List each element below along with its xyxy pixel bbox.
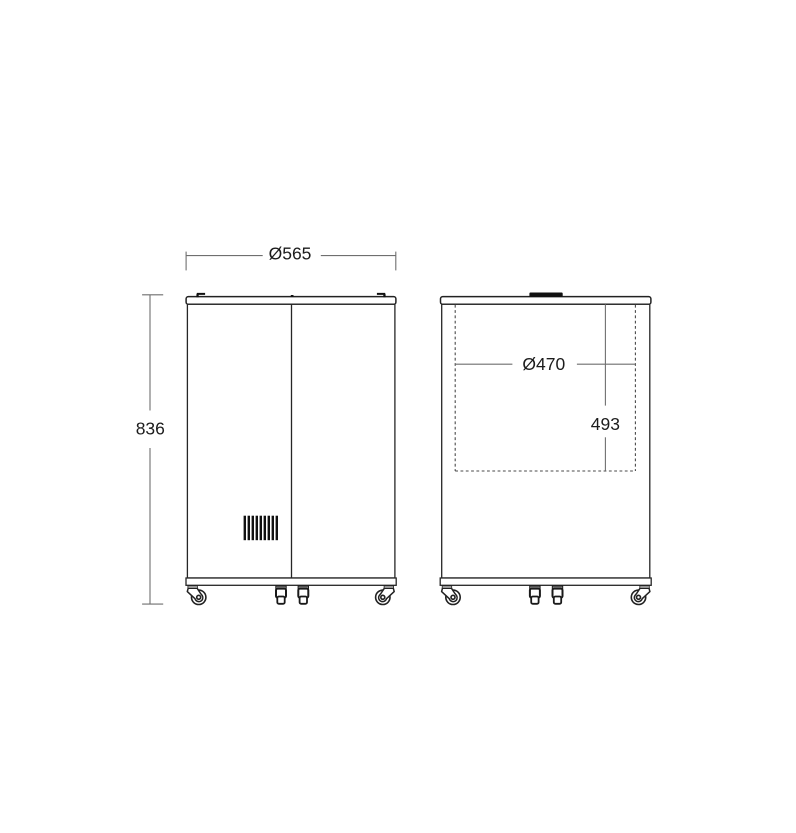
svg-text:493: 493 xyxy=(591,414,620,434)
svg-text:Ø565: Ø565 xyxy=(269,244,312,264)
svg-text:Ø470: Ø470 xyxy=(522,354,565,374)
svg-text:836: 836 xyxy=(136,419,165,439)
